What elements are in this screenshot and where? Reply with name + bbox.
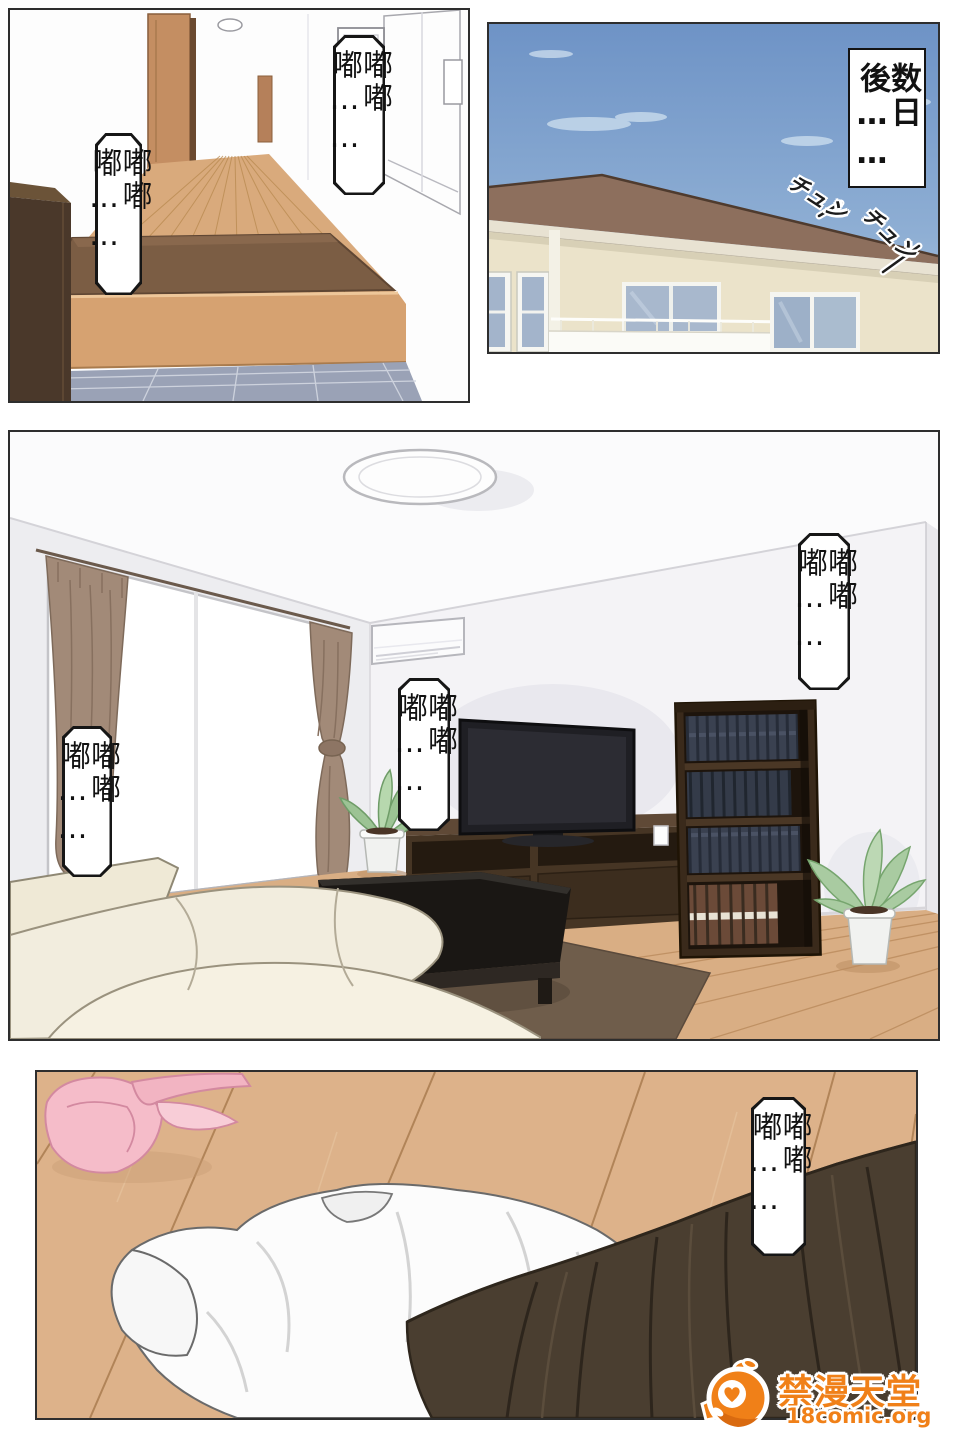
speech-bubble-ring-6: 嘟嘟嘟…… [751,1097,806,1256]
panel-clothes-floor: 嘟嘟嘟…… [35,1070,918,1420]
panel-living-room: 嘟嘟嘟…… 嘟嘟嘟…… 嘟嘟嘟…… [8,430,940,1041]
speech-bubble-ring-1: 嘟嘟嘟…… [95,133,142,295]
speech-bubble-ring-4: 嘟嘟嘟…… [398,678,450,831]
comic-page: 嘟嘟嘟…… 嘟嘟嘟…… [0,0,960,1440]
narration-caption: 数日後…… [848,48,926,188]
panel-house-exterior: 数日後…… チュン チュン [487,22,940,354]
caption-text: 数日後…… [856,50,918,186]
bubble-text: 嘟嘟嘟…… [89,133,149,295]
bubble-text: 嘟嘟嘟…… [329,35,389,195]
bubble-text: 嘟嘟嘟…… [394,678,454,831]
speech-bubble-ring-5: 嘟嘟嘟…… [798,533,850,690]
bubble-text: 嘟嘟嘟…… [749,1097,809,1256]
bubble-text: 嘟嘟嘟…… [57,726,117,877]
living-room-artwork [10,432,938,1039]
speech-bubble-ring-3: 嘟嘟嘟…… [62,726,112,877]
panel-entryway: 嘟嘟嘟…… 嘟嘟嘟…… [8,8,470,403]
speech-bubble-ring-2: 嘟嘟嘟…… [333,35,385,195]
entryway-artwork [10,10,468,401]
bubble-text: 嘟嘟嘟…… [794,533,854,690]
